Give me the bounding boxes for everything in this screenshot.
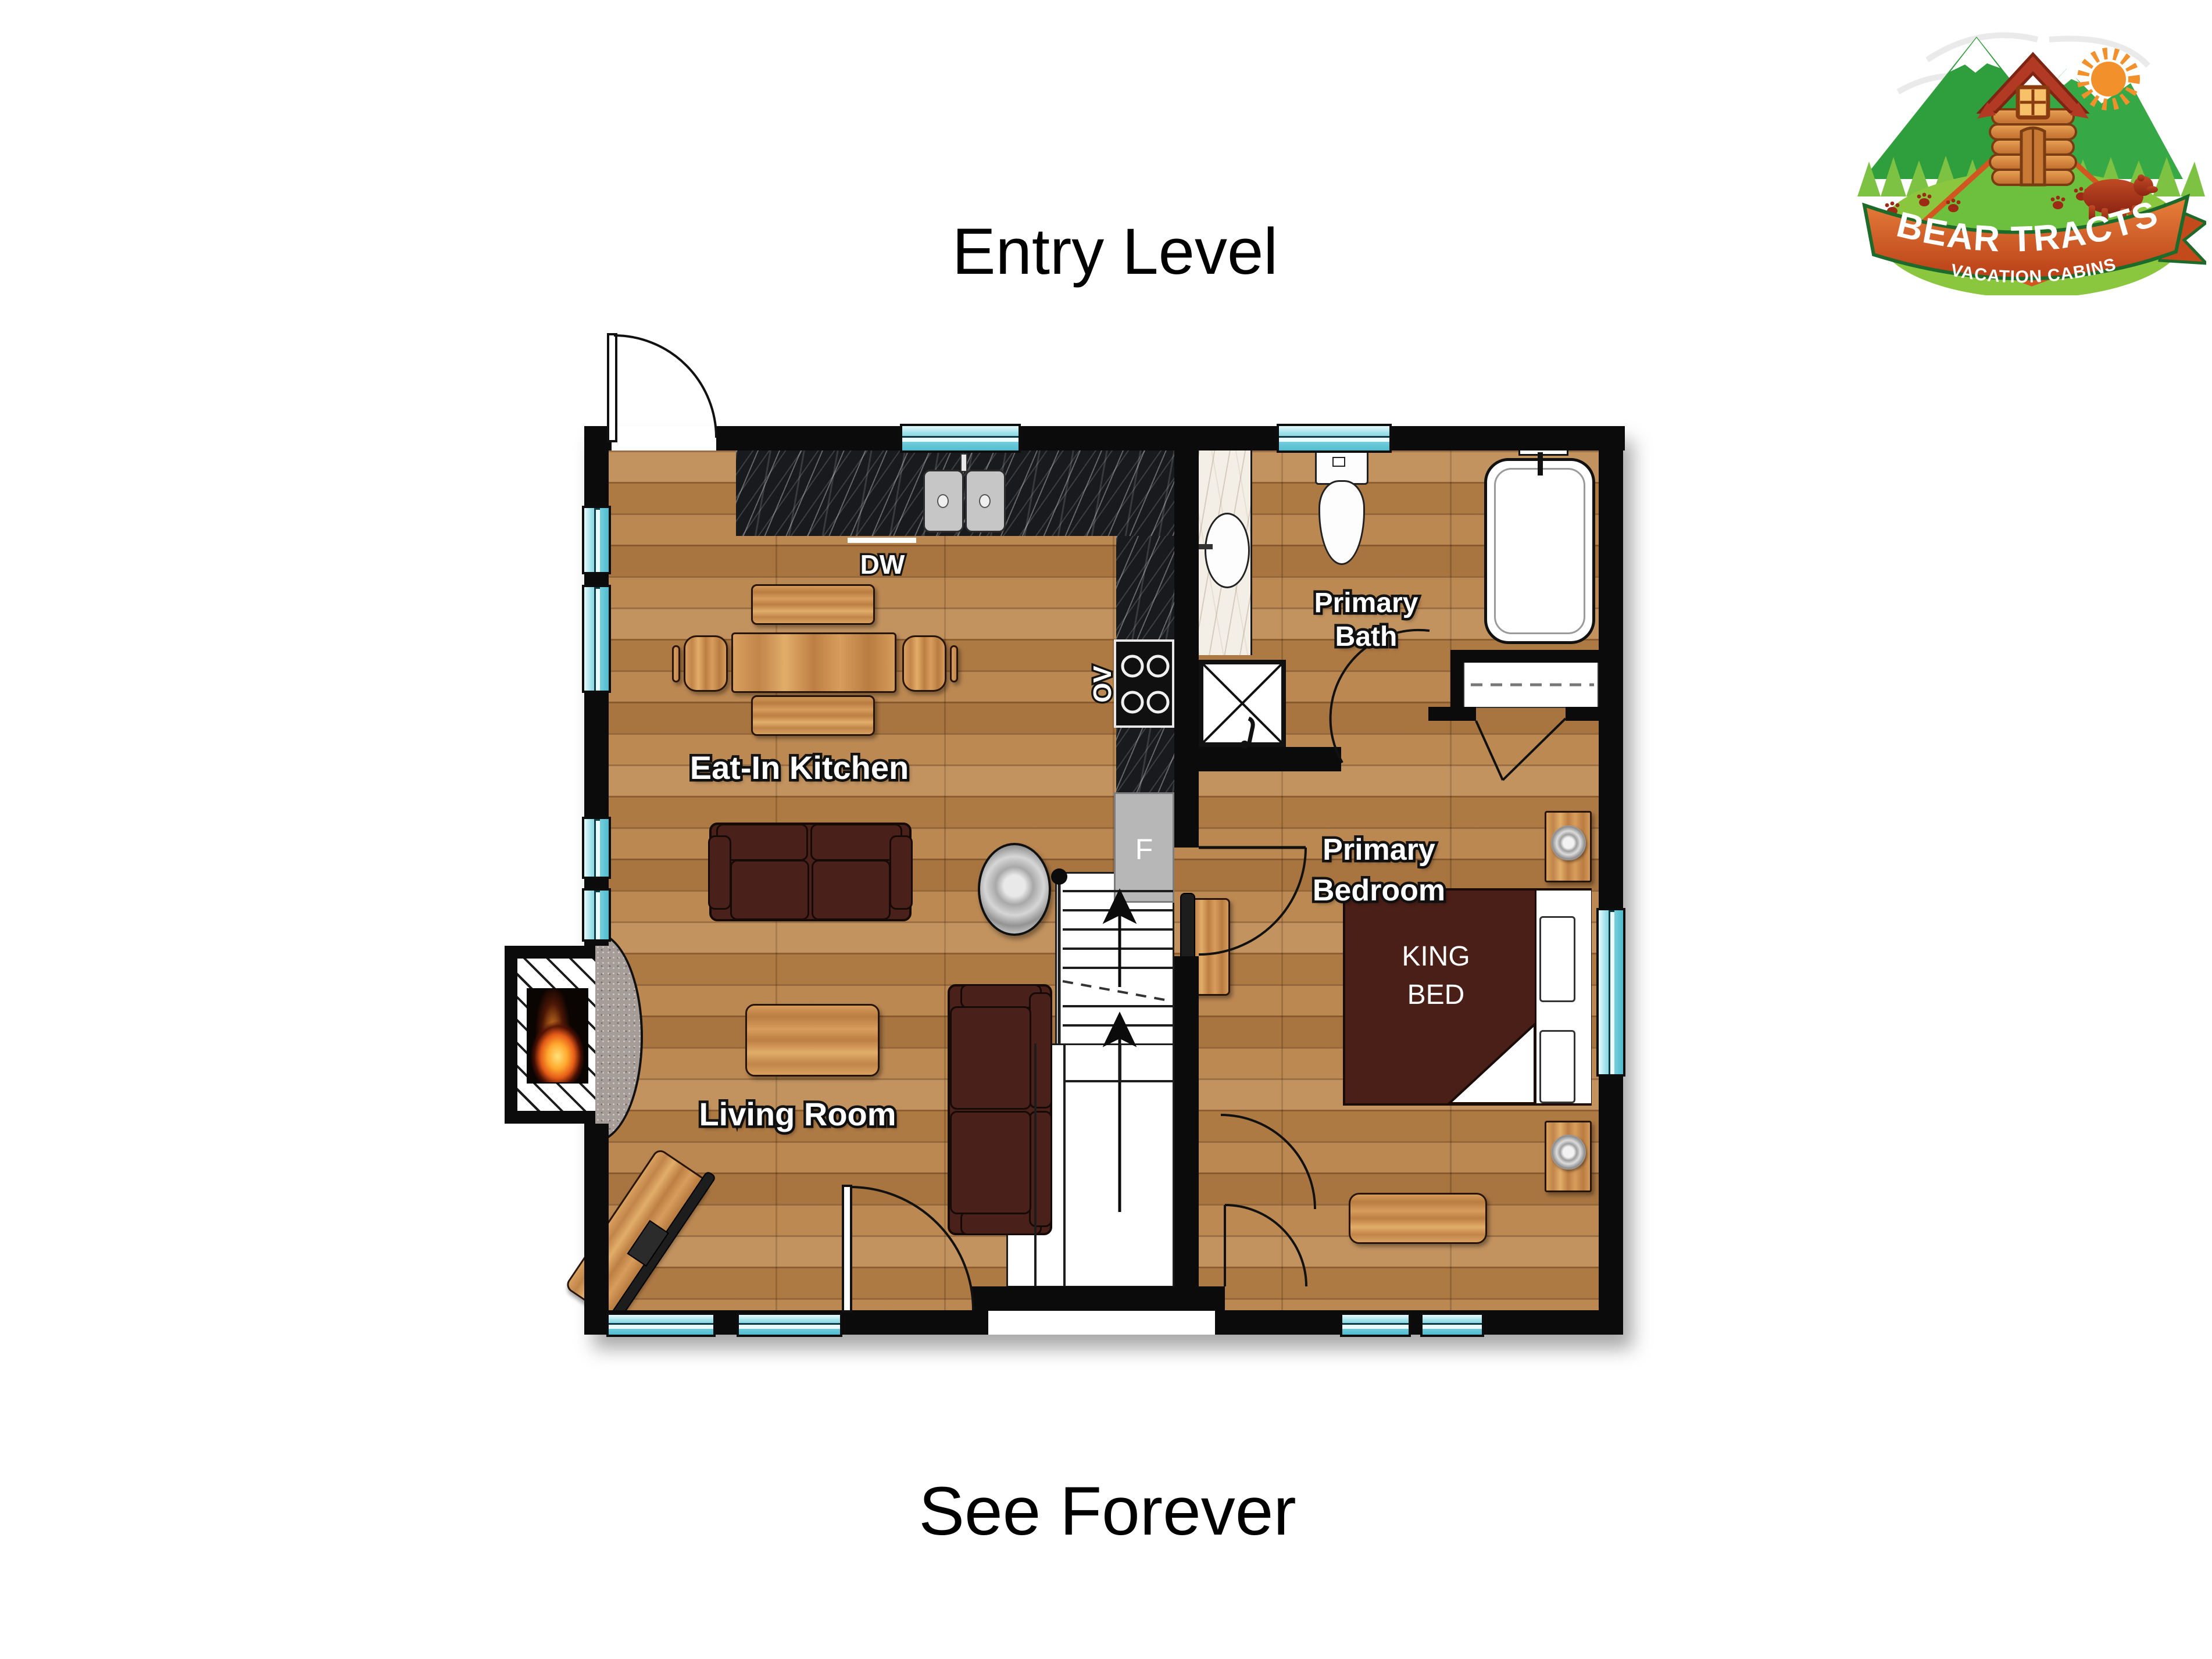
window [1340, 1313, 1411, 1337]
bed-pillow [1539, 916, 1575, 1002]
wall-top [584, 426, 1625, 450]
wall-closet-stub-right [1566, 707, 1599, 721]
fire-icon [527, 988, 588, 1084]
toilet-tank [1315, 449, 1368, 485]
dining-table [731, 632, 896, 693]
bath-faucet-icon [1198, 544, 1213, 549]
dining-bench [751, 584, 875, 625]
window [582, 585, 611, 693]
room-label-bath-line2: Bath [1250, 621, 1482, 653]
window [1596, 908, 1625, 1077]
sofa-seat-cushion [812, 860, 891, 920]
nightstand-lamp-icon [1551, 1135, 1586, 1170]
sofa-armrest [708, 835, 731, 910]
bedroom-bench [1349, 1193, 1487, 1244]
room-label-bath-line1: Primary [1250, 587, 1482, 619]
tub-faucet-stem [1538, 452, 1543, 475]
nightstand-lamp-icon [1551, 825, 1586, 860]
round-side-table [978, 843, 1051, 936]
sink-drain-icon [979, 494, 991, 508]
window [606, 1313, 716, 1337]
bathtub [1484, 458, 1595, 644]
dining-chair-back [672, 645, 680, 682]
logo: BEAR TRACTS VACATION CABINS [1857, 5, 2206, 295]
window [900, 424, 1021, 453]
window [737, 1313, 842, 1337]
cabin-name-title: See Forever [642, 1472, 1573, 1551]
bathtub-basin [1494, 468, 1585, 634]
bath-sink [1205, 513, 1250, 588]
sofa-back-cushion [810, 824, 902, 861]
wall-divider-lower [1174, 956, 1199, 1311]
floor-plan-page: Entry Level See Forever DW OV F [0, 0, 2212, 1659]
dining-chair [902, 635, 946, 692]
window [582, 506, 611, 574]
window [582, 888, 611, 942]
shower [1199, 660, 1286, 747]
fridge-label: F [1114, 832, 1174, 866]
king-bed-label-line1: KING [1355, 941, 1517, 972]
kitchen-faucet-icon [960, 453, 967, 472]
entry-door [608, 334, 716, 441]
sink-drain-icon [937, 494, 949, 508]
room-label-living: Living Room [623, 1095, 972, 1133]
dining-chair [684, 635, 728, 692]
wall-bottom-stairs-jogL [972, 1286, 988, 1335]
oven-label: OV [1088, 649, 1117, 719]
sofa-seat-cushion [730, 860, 809, 920]
bed-pillow [1539, 1030, 1575, 1103]
wall-left-lower [584, 1124, 609, 1335]
room-label-bedroom-line1: Primary [1205, 832, 1553, 867]
coffee-table [745, 1004, 880, 1077]
window [582, 817, 611, 879]
dishwasher-label: DW [836, 549, 929, 580]
king-bed-label-line2: BED [1355, 979, 1517, 1011]
sofa [709, 823, 912, 921]
window [1420, 1313, 1484, 1337]
wall-divider-upper [1174, 426, 1199, 848]
dining-bench [751, 695, 875, 736]
dishwasher-front [848, 538, 916, 543]
loveseat-back-cushion [1029, 992, 1052, 1109]
sofa-armrest [889, 835, 913, 910]
room-label-kitchen: Eat-In Kitchen [625, 749, 974, 786]
room-label-bedroom-line2: Bedroom [1205, 873, 1553, 908]
wall-bath-bedroom-left [1199, 747, 1341, 771]
wall-bottom-bedroom [1215, 1310, 1623, 1335]
wall-closet-stub-left [1428, 707, 1476, 721]
window [1277, 424, 1392, 453]
loveseat-back-cushion [1029, 1111, 1052, 1227]
cooktop [1114, 639, 1174, 728]
page-title: Entry Level [650, 214, 1580, 289]
toilet-flush-button [1332, 457, 1345, 467]
dining-chair-back [950, 645, 958, 682]
bedroom-closet [1463, 662, 1599, 708]
entry-door-opening [612, 426, 716, 450]
wall-right [1599, 426, 1623, 1335]
loveseat-seat-cushion [950, 1006, 1031, 1110]
